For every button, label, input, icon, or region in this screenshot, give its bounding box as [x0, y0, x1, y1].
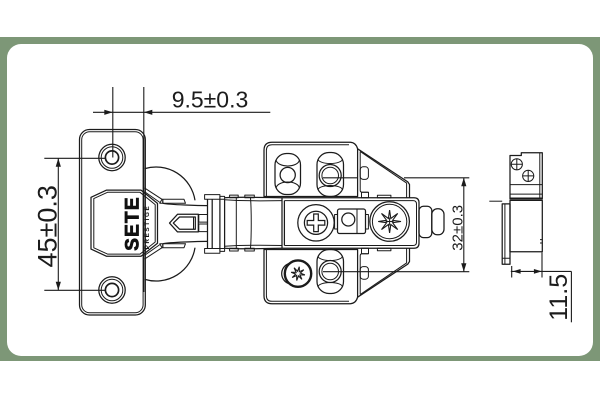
svg-text:32±0.3: 32±0.3 [449, 205, 466, 251]
svg-text:9.5±0.3: 9.5±0.3 [172, 87, 249, 113]
svg-text:SETE: SETE [123, 196, 144, 250]
svg-text:PRESTIGE: PRESTIGE [144, 205, 151, 250]
svg-text:11.5: 11.5 [545, 274, 573, 321]
svg-text:45±0.3: 45±0.3 [33, 185, 63, 267]
